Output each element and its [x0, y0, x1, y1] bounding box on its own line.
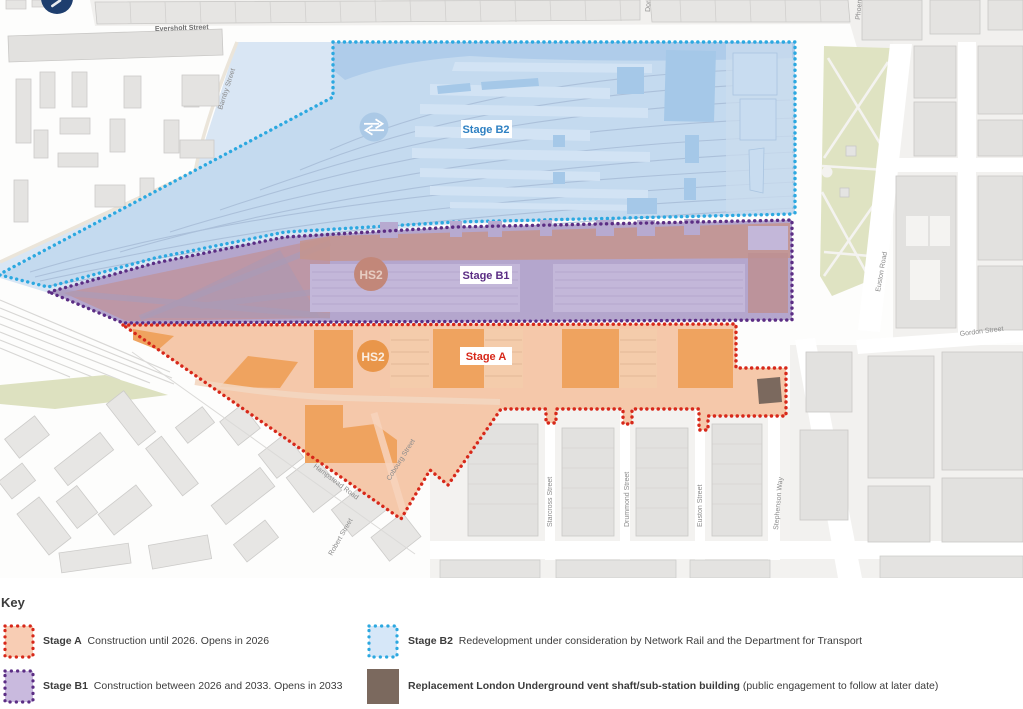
svg-text:Doric W: Doric W: [645, 0, 653, 12]
svg-text:Stage A: Stage A: [466, 351, 507, 363]
svg-text:HS2: HS2: [359, 268, 383, 282]
svg-text:Drummond Street: Drummond Street: [624, 472, 631, 527]
svg-text:Starcross Street: Starcross Street: [547, 477, 554, 527]
svg-text:Stage B2: Stage B2: [462, 124, 509, 136]
svg-text:Euston Street: Euston Street: [697, 485, 704, 527]
svg-text:HS2: HS2: [361, 350, 385, 364]
svg-text:Stage B1: Stage B1: [462, 270, 509, 282]
